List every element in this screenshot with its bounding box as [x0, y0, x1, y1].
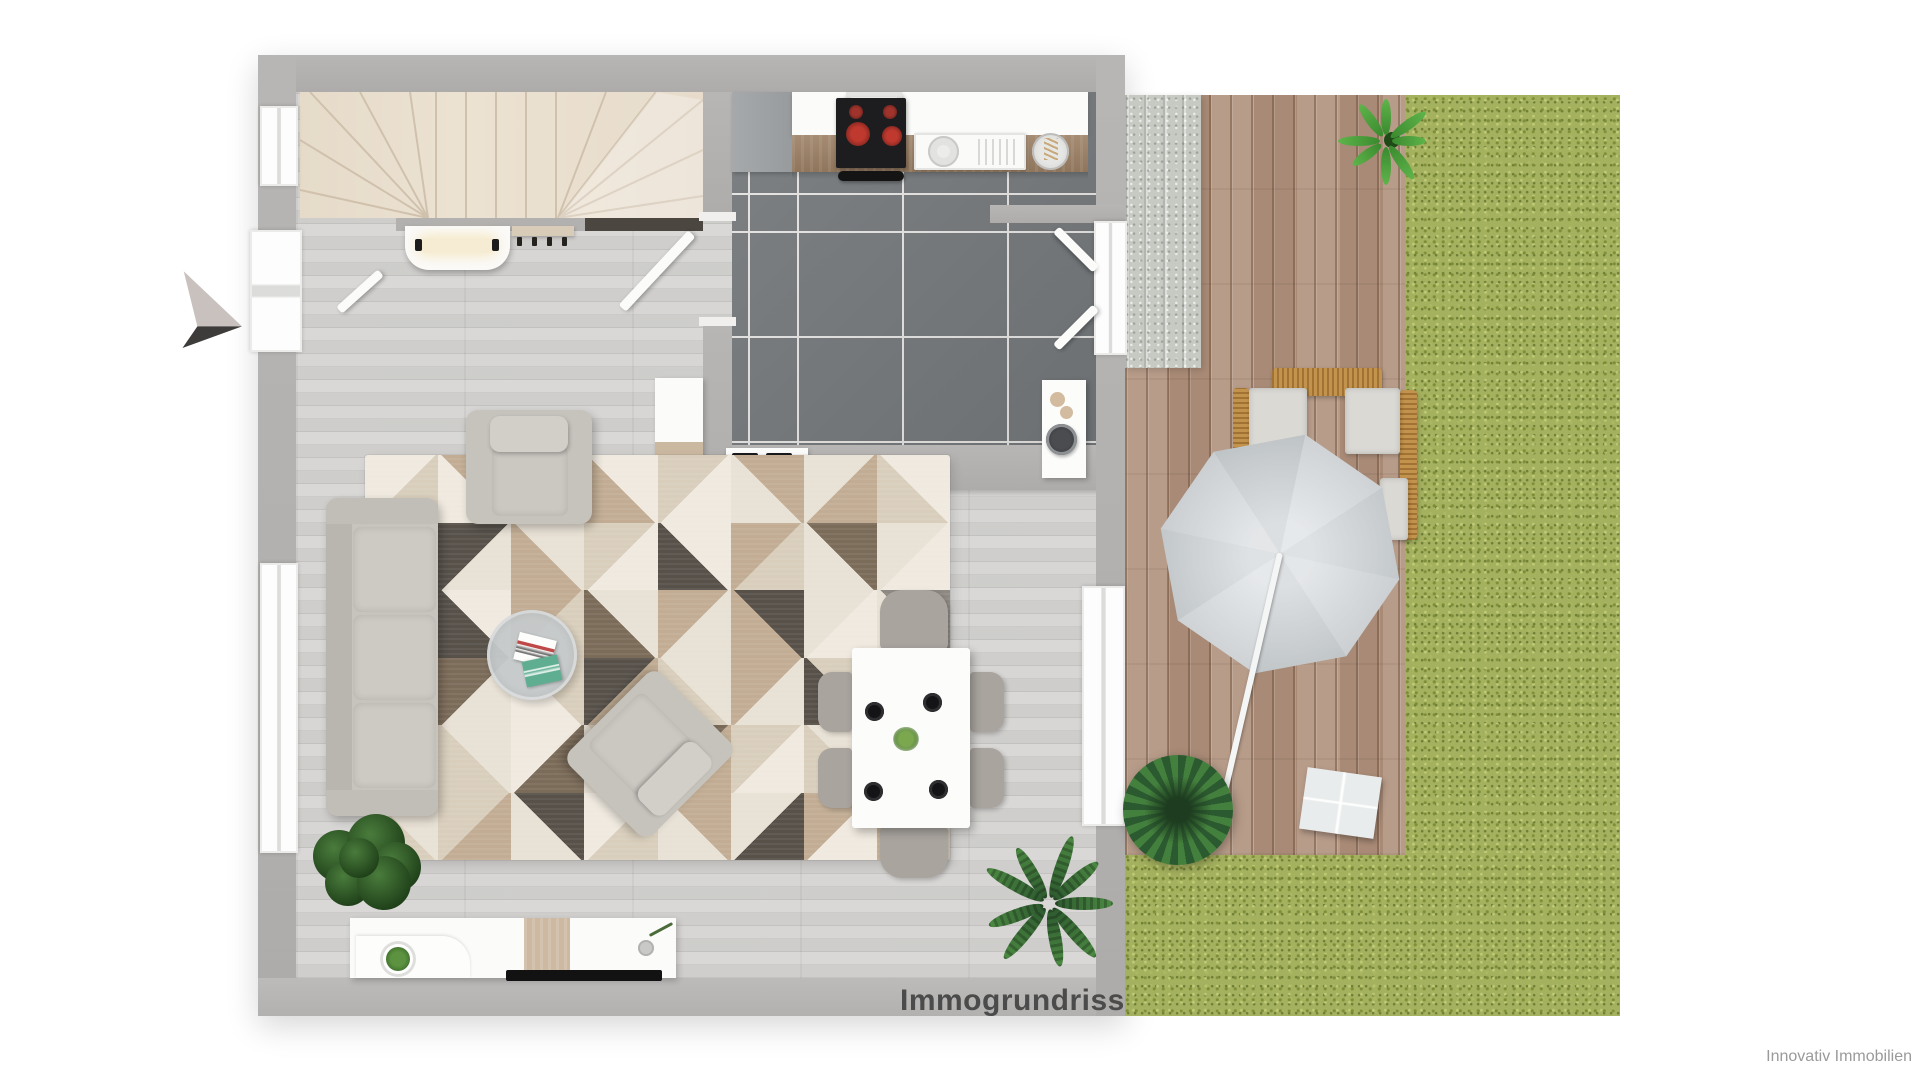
burner [883, 105, 897, 119]
sofa-cushion [353, 615, 436, 700]
rattan-armrest [1233, 388, 1249, 454]
rug-cell [584, 590, 658, 658]
coat-hook [547, 237, 552, 246]
rug-cell [731, 455, 805, 523]
plant-frond [1392, 136, 1426, 146]
place-setting [923, 693, 942, 712]
rug-cell [731, 523, 805, 591]
fridge-cabinet [732, 92, 792, 172]
place-setting [865, 702, 884, 721]
rug-cell [731, 658, 805, 726]
palm-plant [975, 823, 1123, 971]
large-potted-plant [305, 812, 425, 917]
wall-left [258, 55, 296, 1016]
lawn-bottom [1125, 853, 1620, 1016]
agave-plant [1346, 90, 1438, 194]
rug-cell [731, 725, 805, 793]
plant-frond [1055, 897, 1113, 910]
rug-cell [658, 523, 732, 591]
rug-cell [804, 523, 878, 591]
sofa-backrest [326, 498, 352, 816]
dining-chair [880, 590, 948, 650]
rug-cell [658, 455, 732, 523]
entrance-door [250, 230, 302, 352]
living-terrace-window [1082, 586, 1125, 826]
rug-cell [511, 793, 585, 861]
rug-cell [438, 793, 512, 861]
plant-frond [1381, 99, 1391, 135]
sofa-cushion [353, 527, 436, 612]
plant-foliage [339, 838, 379, 878]
plant-frond [1381, 147, 1391, 185]
bench-light-cap [492, 239, 499, 251]
wall-top [258, 55, 1125, 92]
window-left-upper [260, 106, 298, 186]
plate [1050, 392, 1065, 407]
understair-gap [585, 218, 703, 231]
sofa-cushion [353, 703, 436, 788]
sofa-armrest [326, 498, 438, 524]
door-jamb [699, 212, 736, 221]
dining-chair [818, 748, 852, 808]
door-jamb [699, 317, 736, 326]
north-arrow-icon [180, 268, 242, 348]
bench-light-cap [415, 239, 422, 251]
stair-treads [300, 92, 703, 218]
umbrella-base [1299, 767, 1382, 839]
coat-hook [562, 237, 567, 246]
rug-cell [804, 455, 878, 523]
desk-plant [386, 947, 410, 971]
rug-cell [731, 590, 805, 658]
burner [846, 122, 870, 146]
watermark: Immogrundriss [900, 984, 1120, 1018]
tv [506, 970, 662, 981]
bench-light [419, 238, 495, 253]
counter-shadow [792, 172, 1088, 179]
dining-chair [970, 748, 1004, 808]
sink-basin [928, 136, 959, 167]
staircase [300, 92, 703, 218]
utensils [1044, 138, 1058, 160]
plant-frond [1338, 136, 1380, 146]
vase [638, 940, 654, 956]
floorplan-render: Immogrundriss Innovativ Immobilien [0, 0, 1920, 1080]
place-setting [864, 782, 883, 801]
rug-cell [438, 725, 512, 793]
rug-cell [877, 523, 950, 591]
rug-cell [584, 523, 658, 591]
dining-chair [880, 826, 948, 878]
rug-cell [731, 793, 805, 861]
window-left-lower [260, 563, 298, 853]
burner [882, 126, 902, 146]
rug-cell [877, 455, 950, 523]
concrete-steps [1125, 95, 1201, 368]
plate [1060, 406, 1073, 419]
fern-plant [1123, 755, 1233, 865]
rug-cell [438, 523, 512, 591]
dining-chair [970, 672, 1004, 732]
wall-hall-kitchen-upper [703, 92, 732, 220]
outdoor-cushion [1345, 388, 1400, 454]
kitchen-terrace-door [1094, 221, 1127, 355]
sideboard-wood-section [524, 918, 570, 978]
armchair-headrest [490, 416, 568, 452]
sink-drainboard [978, 139, 1020, 165]
burner [849, 105, 863, 119]
rug-cell [511, 523, 585, 591]
branding-text: Innovativ Immobilien [1740, 1048, 1912, 1066]
place-setting [929, 780, 948, 799]
coat-hook [532, 237, 537, 246]
dining-chair [818, 672, 852, 732]
oven-handle [838, 171, 904, 181]
rug-cell [658, 590, 732, 658]
table-centerpiece [893, 727, 919, 751]
rug-cell [584, 455, 658, 523]
coat-hook [517, 237, 522, 246]
armchair-seat [492, 446, 568, 516]
coat-shelf [512, 226, 574, 236]
teapot [1046, 424, 1077, 455]
